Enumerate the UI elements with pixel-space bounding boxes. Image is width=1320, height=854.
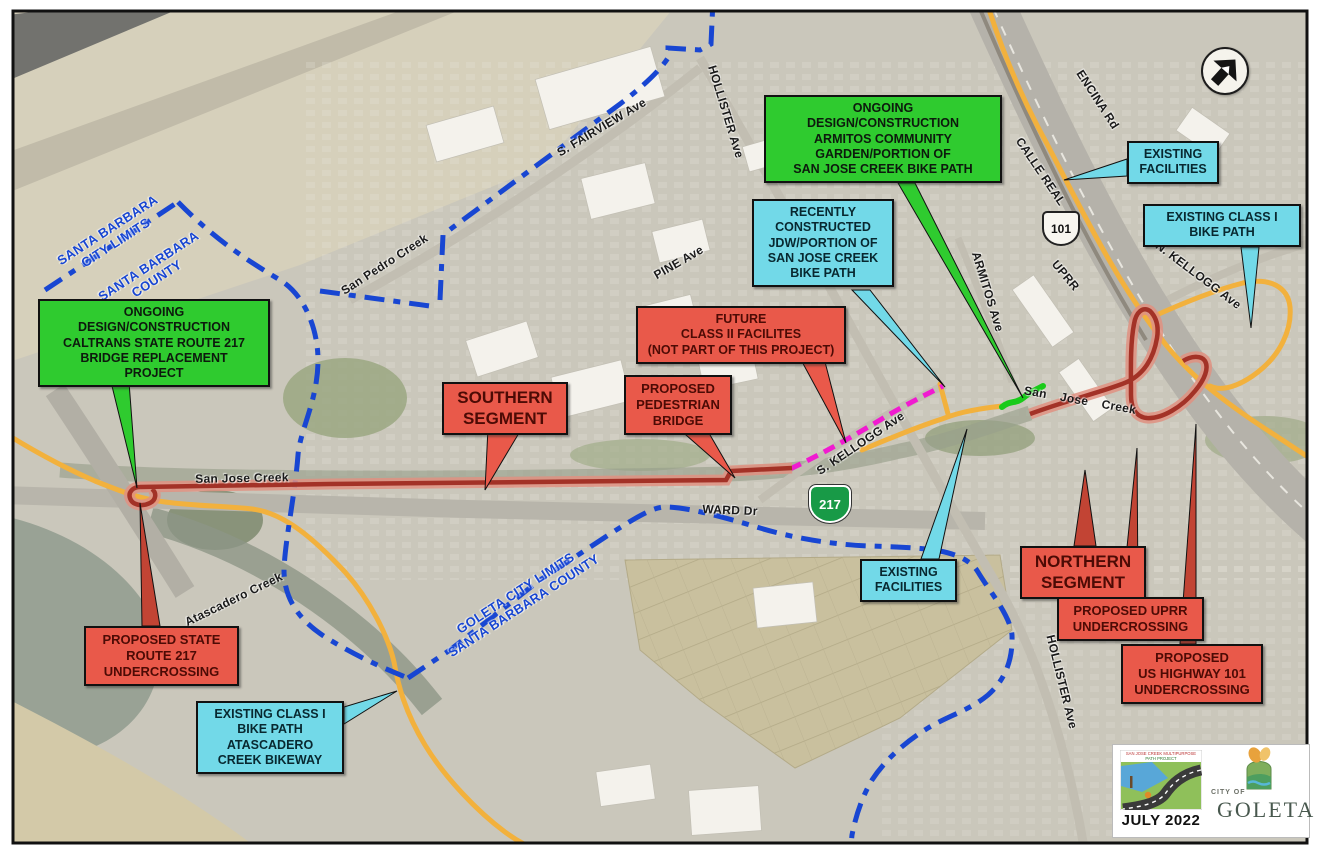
route-101-number: 101 [1051, 222, 1071, 236]
callout-atascadero-bikeway: EXISTING CLASS I BIKE PATH ATASCADERO CR… [196, 701, 344, 774]
callout-northern-segment: NORTHERN SEGMENT [1020, 546, 1146, 599]
north-arrow [1201, 47, 1249, 95]
label-ward: WARD Dr [702, 503, 758, 519]
callout-existing-facilities-ne: EXISTING FACILITIES [1127, 141, 1219, 184]
creek-trees [570, 439, 710, 471]
goleta-emblem [1237, 747, 1281, 791]
goleta-wordmark: GOLETA [1217, 797, 1315, 823]
route-101-shield: 101 [1042, 211, 1080, 246]
callout-pedestrian-bridge: PROPOSED PEDESTRIAN BRIDGE [624, 375, 732, 435]
callout-route217-undercrossing: PROPOSED STATE ROUTE 217 UNDERCROSSING [84, 626, 239, 686]
map-page: SANTA BARBARA CITY LIMITS SANTA BARBARA … [0, 0, 1320, 854]
callout-caltrans-217-bridge: ONGOING DESIGN/CONSTRUCTION CALTRANS STA… [38, 299, 270, 387]
callout-future-class2: FUTURE CLASS II FACILITES (NOT PART OF T… [636, 306, 846, 364]
callout-us101-undercrossing: PROPOSED US HIGHWAY 101 UNDERCROSSING [1121, 644, 1263, 704]
callout-uprr-undercrossing: PROPOSED UPRR UNDERCROSSING [1057, 597, 1204, 641]
logo-lamp [1130, 776, 1133, 788]
callout-existing-class1-bike-path: EXISTING CLASS I BIKE PATH [1143, 204, 1301, 247]
project-logo-line2: PATH PROJECT [1145, 756, 1177, 761]
project-logo-block: SAN JOSE CREEK MULTIPURPOSE PATH PROJECT… [1113, 745, 1209, 837]
callout-southern-segment: SOUTHERN SEGMENT [442, 382, 568, 435]
route-217-shield: 217 [809, 485, 851, 523]
label-san-jose-creek-w: San Jose Creek [195, 471, 289, 486]
legend-panel: SAN JOSE CREEK MULTIPURPOSE PATH PROJECT… [1112, 744, 1310, 838]
logo-cyclist [1145, 792, 1151, 798]
map-date: JULY 2022 [1122, 812, 1201, 829]
callout-recently-constructed: RECENTLY CONSTRUCTED JDW/PORTION OF SAN … [752, 199, 894, 287]
goleta-logo: CITY OF GOLETA [1209, 745, 1309, 837]
project-logo: SAN JOSE CREEK MULTIPURPOSE PATH PROJECT [1120, 750, 1202, 810]
callout-armitos-garden: ONGOING DESIGN/CONSTRUCTION ARMITOS COMM… [764, 95, 1002, 183]
park-hill [283, 358, 407, 438]
goleta-city-of: CITY OF [1211, 789, 1245, 796]
callout-existing-facilities-s: EXISTING FACILITIES [860, 559, 957, 602]
route-217-number: 217 [819, 497, 841, 512]
